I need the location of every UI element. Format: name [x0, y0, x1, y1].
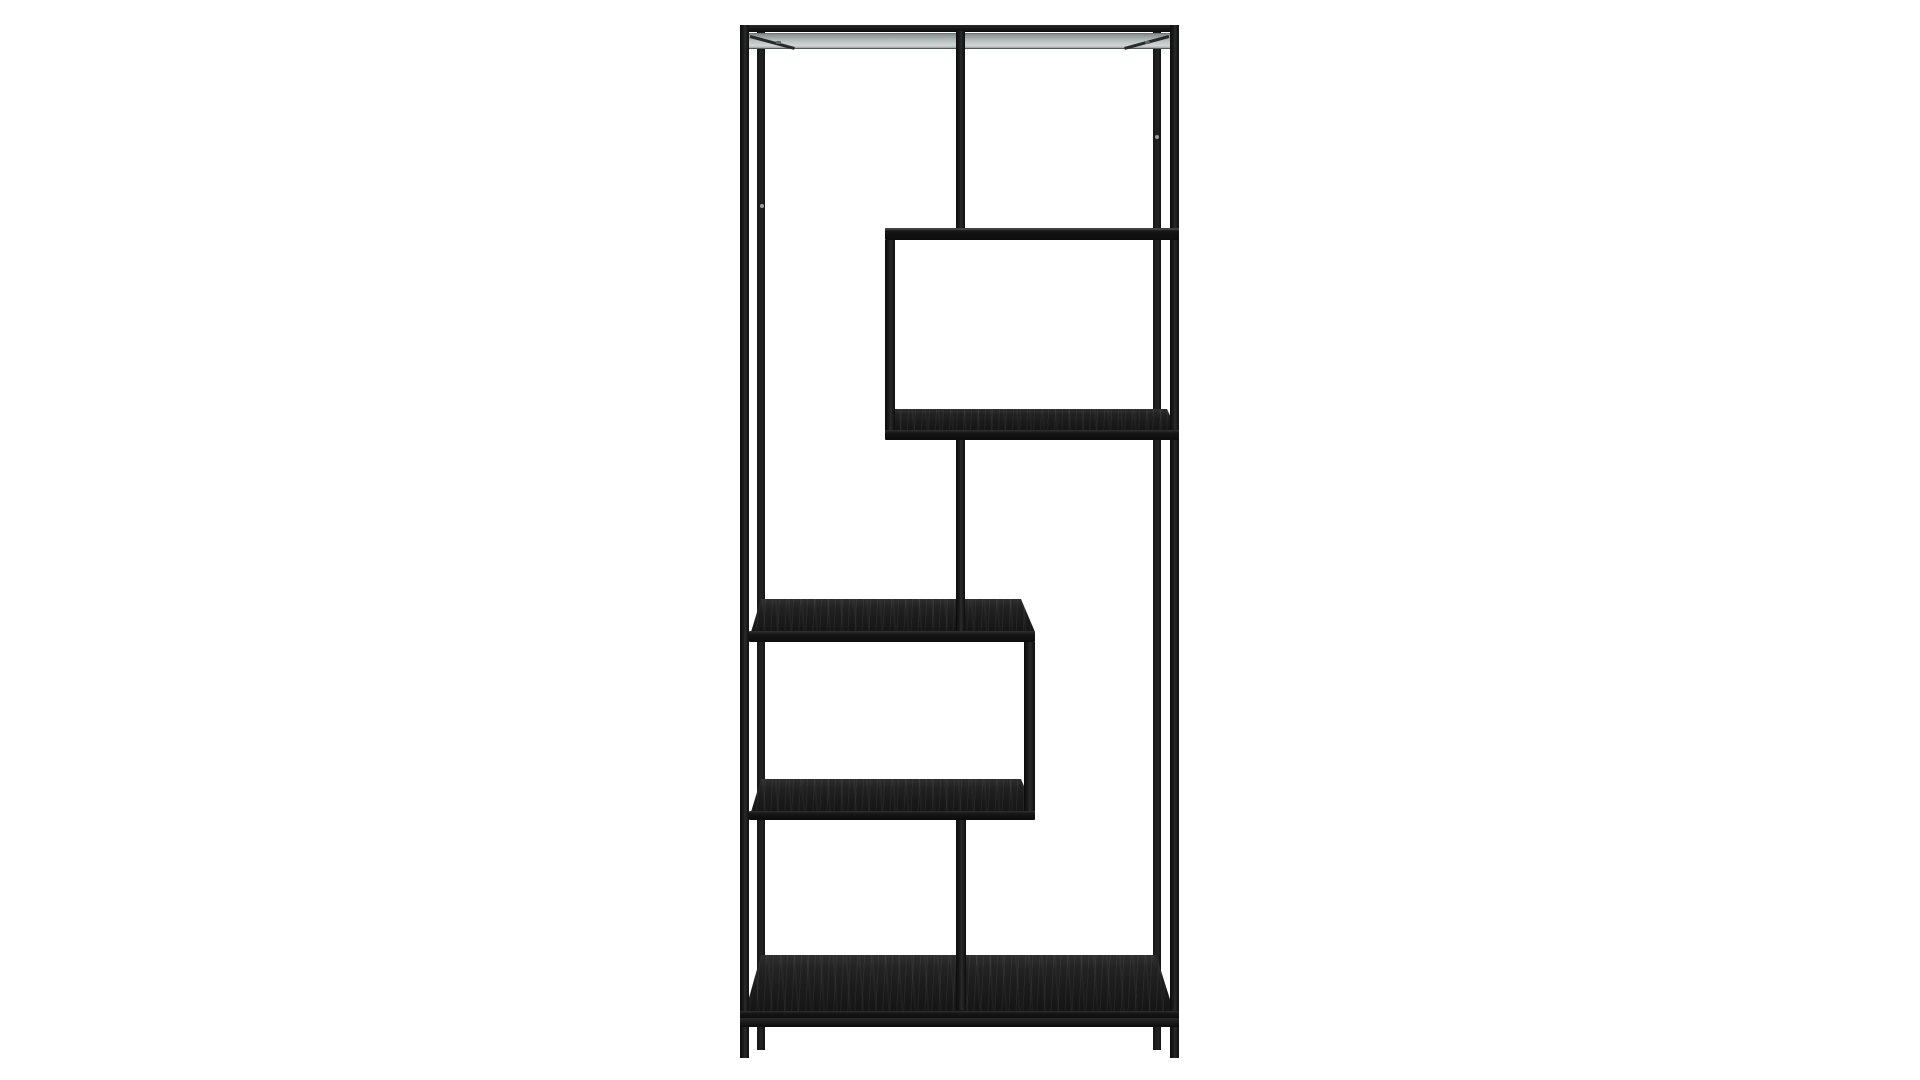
product-photo-stage [0, 0, 1920, 1080]
right-wall-left-box [1024, 642, 1035, 811]
foot-front-right [1170, 1027, 1179, 1058]
screw-dot-left-post [760, 204, 764, 208]
foot-back-right [1154, 1027, 1161, 1050]
frame-back-left-post [757, 31, 765, 1050]
frame-back-right-post [1153, 31, 1161, 1050]
shelf-left-lower-surface [751, 779, 1035, 812]
center-divider-upper [956, 31, 965, 229]
screw-dot-top-shelf-right [1145, 41, 1150, 44]
frame-left-post [740, 25, 749, 1058]
center-divider-middle [956, 440, 965, 631]
shelf-right-upper-front-edge [885, 228, 1179, 240]
screw-dot-right-post [1155, 135, 1159, 139]
shelf-left-upper-front-edge [749, 631, 1035, 642]
foot-front-left [740, 1027, 749, 1058]
shelf-edge-highlight [885, 228, 1179, 230]
shelf-left-upper-surface [751, 599, 1035, 632]
shelf-right-box-front-edge [885, 430, 1179, 440]
frame-bottom-bar [740, 1018, 1179, 1027]
center-divider-lower [956, 820, 966, 1010]
foot-back-left [757, 1027, 764, 1050]
shelf-right-box-surface [887, 409, 1177, 431]
left-wall-right-box [885, 240, 895, 432]
shelf-left-lower-front-edge [749, 811, 1035, 820]
screw-dot-top-shelf-left [776, 41, 781, 44]
frame-right-post [1170, 25, 1179, 1058]
